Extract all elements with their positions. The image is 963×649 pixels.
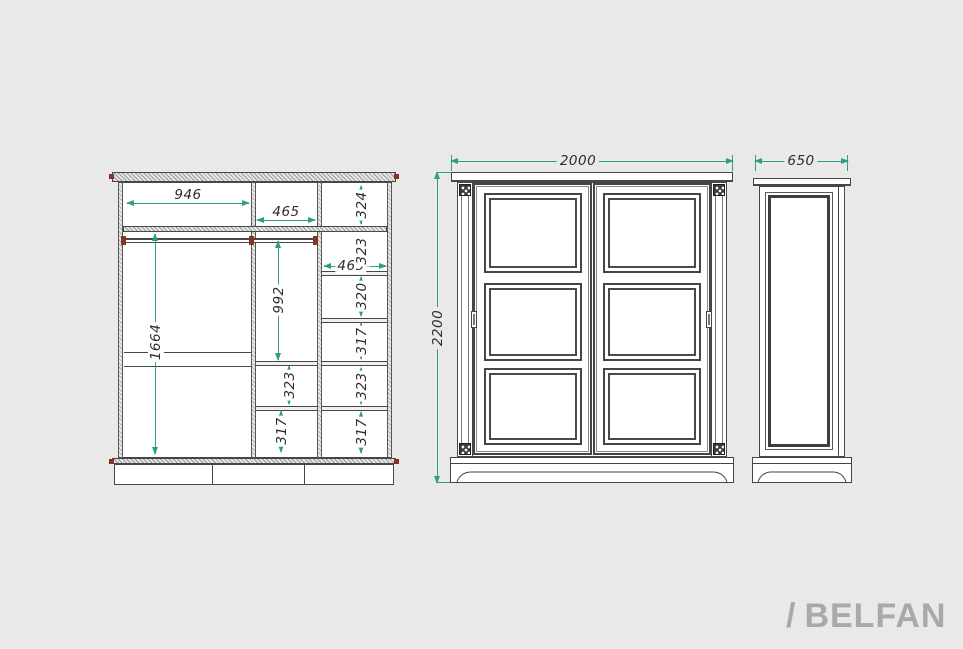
- dim-label-465-top: 465: [272, 204, 299, 220]
- rod-bracket: [121, 236, 126, 245]
- dim-label-946: 946: [174, 187, 201, 203]
- dim-label-right-323b: 323: [354, 370, 370, 401]
- door-handle-left: [471, 311, 477, 328]
- dim-label-right-317b: 317: [354, 416, 370, 447]
- dim-label-right-320: 320: [354, 280, 370, 311]
- front-top-board: [451, 172, 733, 182]
- shelf: [322, 406, 387, 411]
- corner-rosette-icon: [713, 184, 725, 196]
- door-handle-right: [706, 311, 712, 328]
- top-board: [112, 172, 396, 182]
- plinth-divider: [304, 464, 305, 485]
- door-panel: [603, 193, 701, 273]
- dim-label-right-324: 324: [354, 189, 370, 220]
- dim-label-992: 992: [271, 284, 287, 315]
- dim-label-1664: 1664: [148, 322, 164, 362]
- dim-label-right-317a: 317: [354, 325, 370, 356]
- dim-label-650: 650: [784, 153, 817, 169]
- shelf: [322, 361, 387, 366]
- shelf: [256, 406, 317, 411]
- red-corner-mark: [109, 174, 114, 179]
- logo-name: BELFAN: [804, 597, 946, 635]
- red-corner-mark: [394, 174, 399, 179]
- red-corner-mark: [394, 459, 399, 464]
- top-shelf: [123, 226, 387, 232]
- front-plinth: [450, 457, 734, 483]
- dim-label-right-323a: 323: [354, 235, 370, 266]
- side-top-board: [753, 178, 851, 186]
- plinth-base: [114, 464, 394, 485]
- door-panel: [603, 283, 701, 361]
- pilaster-right: [711, 182, 727, 457]
- vertical-divider-1: [251, 182, 256, 458]
- corner-rosette-icon: [713, 443, 725, 455]
- side-wall-left: [118, 182, 123, 458]
- door-panel: [484, 283, 582, 361]
- door-panel: [603, 368, 701, 445]
- side-wall-right: [387, 182, 392, 458]
- dim-line-465-top: [257, 220, 315, 221]
- corner-rosette-icon: [459, 184, 471, 196]
- side-panel: [765, 192, 833, 450]
- sliding-door-left: [473, 183, 592, 455]
- rod-bracket: [249, 236, 254, 245]
- side-front-edge-line: [838, 187, 839, 456]
- door-panel: [484, 368, 582, 445]
- dim-label-mid-317: 317: [274, 415, 290, 446]
- door-panel: [484, 193, 582, 273]
- dim-line-946: [127, 203, 249, 204]
- extension-line: [438, 172, 452, 173]
- dim-label-2200: 2200: [430, 307, 446, 349]
- shelf: [322, 318, 387, 323]
- blueprint-canvas: 946 465 465 1664 992 323 317 324 323 320…: [0, 0, 963, 649]
- corner-rosette-icon: [459, 443, 471, 455]
- logo-slash: /: [786, 597, 796, 635]
- sliding-door-right: [593, 183, 711, 455]
- plinth-divider: [212, 464, 213, 485]
- dim-label-2000: 2000: [557, 153, 599, 169]
- left-shelf-band: [124, 352, 251, 367]
- side-plinth: [752, 457, 852, 483]
- dim-label-mid-323: 323: [282, 369, 298, 400]
- rod-bracket: [313, 236, 318, 245]
- brand-logo: /BELFAN: [786, 597, 946, 636]
